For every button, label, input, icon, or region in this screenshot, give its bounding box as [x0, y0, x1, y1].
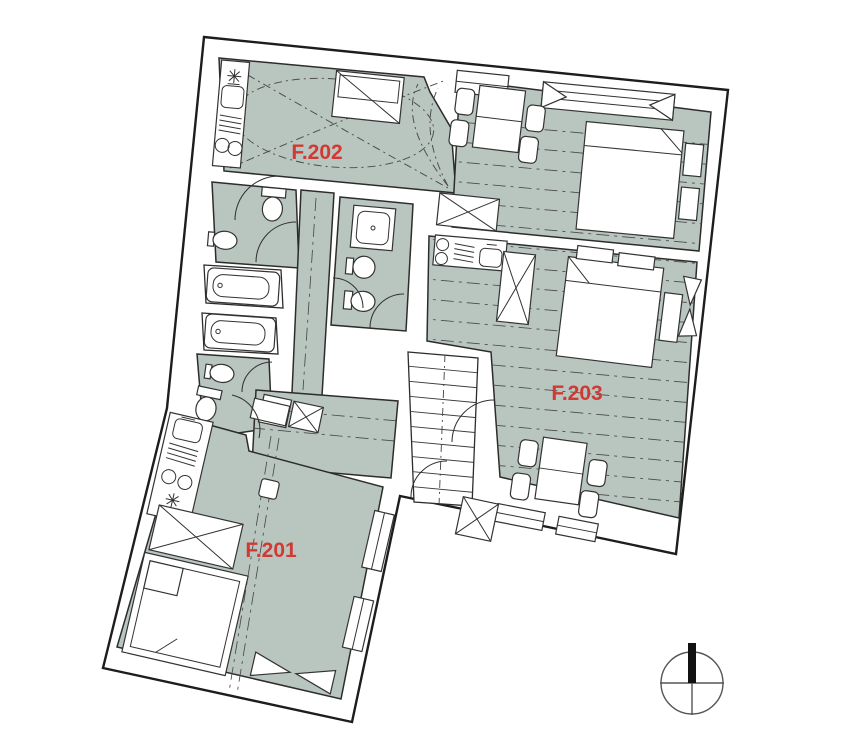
shower-icon: [350, 205, 396, 251]
bathtub-icon: [206, 268, 280, 307]
north-compass-icon: [660, 643, 724, 715]
staircase: [406, 352, 480, 506]
room-label-f203: F.203: [551, 382, 602, 405]
entry-bay-icon: [455, 497, 498, 542]
wardrobe-icon: [436, 193, 499, 231]
kitchen-counter-icon: [433, 235, 507, 271]
nightstand-icon: [683, 143, 704, 177]
bathtub-icon: [204, 314, 276, 353]
nightstand-icon: [679, 187, 700, 221]
wardrobe-icon: [496, 252, 535, 325]
room-label-f202: F.202: [291, 141, 342, 164]
floor-plan-svg: F.202 F.203 F.201: [0, 0, 857, 752]
bed-icon: [332, 71, 404, 124]
duct-shaft-icon: [289, 401, 324, 433]
bathtub-niche-2: [202, 313, 278, 354]
room-label-f201: F.201: [245, 539, 297, 562]
stool-icon: [258, 478, 280, 500]
north-needle: [688, 643, 696, 683]
floor-plan-page: F.202 F.203 F.201: [0, 0, 857, 752]
bathtub-niche-1: [204, 265, 283, 308]
